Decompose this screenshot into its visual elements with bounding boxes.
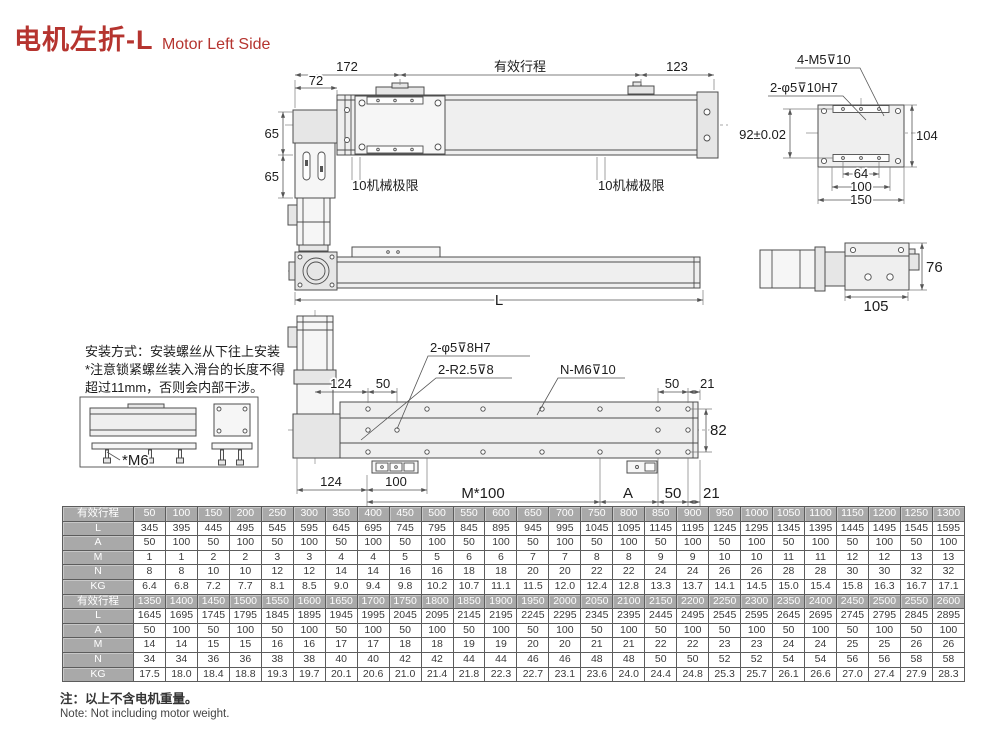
stroke-value-cell: 1800 (421, 594, 453, 609)
sensor (628, 86, 654, 94)
spec-value-cell: 24.0 (613, 667, 645, 682)
spec-value-cell: 19.3 (261, 667, 293, 682)
spec-value-cell: 10 (229, 565, 261, 580)
spec-row: KG6.46.87.27.78.18.59.09.49.810.210.711.… (63, 579, 965, 594)
spec-value-cell: 495 (229, 521, 261, 536)
spec-value-cell: 3 (293, 550, 325, 565)
spec-value-cell: 845 (453, 521, 485, 536)
spec-value-cell: 8 (165, 565, 197, 580)
stroke-value-cell: 2600 (932, 594, 964, 609)
spec-value-cell: 13 (932, 550, 964, 565)
spec-value-cell: 16.7 (900, 579, 932, 594)
stroke-value-cell: 1750 (389, 594, 421, 609)
spec-value-cell: 44 (485, 652, 517, 667)
spec-value-cell: 1095 (613, 521, 645, 536)
spec-value-cell: 6.8 (165, 579, 197, 594)
mount-note-line2: *注意锁紧螺丝装入滑台的长度不得 (85, 362, 285, 377)
spec-value-cell: 4 (357, 550, 389, 565)
spec-value-cell: 23 (709, 638, 741, 653)
spec-row: M1122334455667788991010111112121313 (63, 550, 965, 565)
dim-92: 92±0.02 (739, 127, 786, 142)
spec-value-cell: 995 (549, 521, 581, 536)
spec-value-cell: 54 (773, 652, 805, 667)
spec-value-cell: 2 (197, 550, 229, 565)
spec-value-cell: 38 (261, 652, 293, 667)
spec-value-cell: 14 (134, 638, 166, 653)
stroke-value-cell: 1900 (485, 594, 517, 609)
spec-value-cell: 100 (932, 623, 964, 638)
spec-value-cell: 12 (293, 565, 325, 580)
spec-table: 有效行程501001502002503003504004505005506006… (62, 506, 965, 682)
spec-table-container: 有效行程501001502002503003504004505005506006… (62, 506, 965, 682)
spec-value-cell: 9.8 (389, 579, 421, 594)
label-mech-limit-right: 10机械极限 (598, 178, 664, 193)
spec-value-cell: 38 (293, 652, 325, 667)
spec-value-cell: 100 (229, 623, 261, 638)
spec-value-cell: 100 (485, 623, 517, 638)
spec-value-cell: 1 (134, 550, 166, 565)
spec-value-cell: 34 (165, 652, 197, 667)
spec-value-cell: 1145 (645, 521, 677, 536)
spec-value-cell: 23.6 (581, 667, 613, 682)
spec-value-cell: 100 (165, 623, 197, 638)
row-label: A (63, 536, 134, 551)
spec-value-cell: 100 (868, 536, 900, 551)
spec-value-cell: 18.4 (197, 667, 229, 682)
ann-2-phi5-8h7: 2-φ5⊽8H7 (430, 340, 491, 355)
spec-value-cell: 56 (868, 652, 900, 667)
spec-value-cell: 1445 (836, 521, 868, 536)
spec-value-cell: 15.8 (836, 579, 868, 594)
spec-row: A501005010050100501005010050100501005010… (63, 623, 965, 638)
spec-value-cell: 9.4 (357, 579, 389, 594)
spec-value-cell: 50 (900, 536, 932, 551)
mount-screws-right (219, 450, 244, 465)
spec-value-cell: 12 (836, 550, 868, 565)
spec-value-cell: 19 (453, 638, 485, 653)
dim-m100: M*100 (461, 485, 504, 502)
spec-value-cell: 19 (485, 638, 517, 653)
spec-value-cell: 50 (197, 623, 229, 638)
spec-value-cell: 2295 (549, 609, 581, 624)
spec-value-cell: 8.1 (261, 579, 293, 594)
spec-value-cell: 100 (165, 536, 197, 551)
spec-value-cell: 100 (741, 536, 773, 551)
stroke-value-cell: 2100 (613, 594, 645, 609)
spec-value-cell: 46 (549, 652, 581, 667)
spec-value-cell: 395 (165, 521, 197, 536)
spec-value-cell: 2645 (773, 609, 805, 624)
spec-value-cell: 11 (805, 550, 837, 565)
spec-value-cell: 895 (485, 521, 517, 536)
spec-value-cell: 15.4 (805, 579, 837, 594)
spec-value-cell: 24.4 (645, 667, 677, 682)
spec-value-cell: 2545 (709, 609, 741, 624)
spec-value-cell: 27.4 (868, 667, 900, 682)
spec-value-cell: 5 (421, 550, 453, 565)
spec-value-cell: 52 (709, 652, 741, 667)
dim-104: 104 (916, 128, 938, 143)
spec-value-cell: 8 (134, 565, 166, 580)
spec-value-cell: 20 (517, 565, 549, 580)
dim-50-top-right: 50 (665, 376, 679, 391)
spec-value-cell: 2345 (581, 609, 613, 624)
spec-row: KG17.518.018.418.819.319.720.120.621.021… (63, 667, 965, 682)
stroke-value-cell: 700 (549, 507, 581, 522)
spec-value-cell: 46 (517, 652, 549, 667)
spec-value-cell: 34 (134, 652, 166, 667)
spec-value-cell: 11.5 (517, 579, 549, 594)
spec-value-cell: 10 (741, 550, 773, 565)
spec-value-cell: 2245 (517, 609, 549, 624)
spec-value-cell: 545 (261, 521, 293, 536)
dim-21-bottom: 21 (703, 485, 720, 502)
motor-end (760, 250, 815, 288)
spec-value-cell: 1345 (773, 521, 805, 536)
spec-value-cell: 50 (581, 623, 613, 638)
spec-value-cell: 1995 (357, 609, 389, 624)
dim-123: 123 (666, 59, 688, 74)
motor-top-block (297, 316, 333, 370)
spec-value-cell: 10.7 (453, 579, 485, 594)
spec-value-cell: 25.7 (741, 667, 773, 682)
stroke-value-cell: 1450 (197, 594, 229, 609)
spec-value-cell: 25 (836, 638, 868, 653)
spec-value-cell: 15 (229, 638, 261, 653)
spec-value-cell: 2495 (677, 609, 709, 624)
spec-value-cell: 100 (868, 623, 900, 638)
spec-value-cell: 1645 (134, 609, 166, 624)
spec-row: A501005010050100501005010050100501005010… (63, 536, 965, 551)
spec-value-cell: 25.3 (709, 667, 741, 682)
spec-value-cell: 23.1 (549, 667, 581, 682)
spec-value-cell: 945 (517, 521, 549, 536)
dim-L: L (495, 292, 503, 309)
spec-value-cell: 58 (932, 652, 964, 667)
spec-value-cell: 21.0 (389, 667, 421, 682)
sensor-end (909, 254, 919, 270)
dim-72: 72 (309, 73, 323, 88)
spec-value-cell: 50 (197, 536, 229, 551)
stroke-value-cell: 300 (293, 507, 325, 522)
carriage-plate (355, 96, 445, 154)
spec-value-cell: 100 (485, 536, 517, 551)
spec-value-cell: 50 (645, 623, 677, 638)
motor-body (295, 143, 335, 198)
stroke-value-cell: 2450 (836, 594, 868, 609)
spec-value-cell: 7.2 (197, 579, 229, 594)
spec-value-cell: 42 (421, 652, 453, 667)
spec-value-cell: 7 (549, 550, 581, 565)
spec-value-cell: 2045 (389, 609, 421, 624)
spec-value-cell: 18 (389, 638, 421, 653)
spec-value-cell: 20 (549, 638, 581, 653)
spec-value-cell: 3 (261, 550, 293, 565)
spec-row: N881010121214141616181820202222242426262… (63, 565, 965, 580)
stroke-value-cell: 950 (709, 507, 741, 522)
spec-value-cell: 28 (805, 565, 837, 580)
stroke-value-cell: 2200 (677, 594, 709, 609)
stroke-value-cell: 350 (325, 507, 357, 522)
stroke-value-cell: 1550 (261, 594, 293, 609)
spec-value-cell: 26 (900, 638, 932, 653)
spec-value-cell: 8.5 (293, 579, 325, 594)
dim-100-bottom: 100 (385, 474, 407, 489)
spec-value-cell: 6.4 (134, 579, 166, 594)
spec-value-cell: 50 (836, 536, 868, 551)
spec-value-cell: 22 (645, 638, 677, 653)
stroke-value-cell: 400 (357, 507, 389, 522)
bottom-view-drawing: 2-φ5⊽8H7 2-R2.5⊽8 N-M6⊽10 124 50 50 21 8… (288, 310, 727, 506)
row-label: N (63, 565, 134, 580)
spec-value-cell: 14.1 (709, 579, 741, 594)
spec-value-cell: 100 (805, 536, 837, 551)
ann-n-m6: N-M6⊽10 (560, 362, 616, 377)
spec-value-cell: 36 (197, 652, 229, 667)
spec-value-cell: 1045 (581, 521, 613, 536)
spec-value-cell: 17.1 (932, 579, 964, 594)
spec-value-cell: 100 (357, 623, 389, 638)
spec-value-cell: 2195 (485, 609, 517, 624)
row-label: M (63, 638, 134, 653)
dim-21-top-right: 21 (700, 376, 714, 391)
dim-124-bottom: 124 (320, 474, 342, 489)
spec-value-cell: 32 (900, 565, 932, 580)
spec-value-cell: 18 (485, 565, 517, 580)
dim-50-top: 50 (376, 376, 390, 391)
stroke-value-cell: 1500 (229, 594, 261, 609)
note-chinese: 注：以上不含电机重量。 (60, 688, 229, 707)
stroke-value-cell: 750 (581, 507, 613, 522)
dim-82: 82 (710, 422, 727, 439)
stroke-value-cell: 1850 (453, 594, 485, 609)
spec-value-cell: 50 (517, 623, 549, 638)
spec-value-cell: 18 (421, 638, 453, 653)
stroke-value-cell: 1300 (932, 507, 964, 522)
spec-value-cell: 24.8 (677, 667, 709, 682)
carriage-side (352, 247, 440, 257)
stroke-value-cell: 200 (229, 507, 261, 522)
spec-value-cell: 595 (293, 521, 325, 536)
spec-value-cell: 10 (709, 550, 741, 565)
motor-bracket (293, 110, 337, 143)
spec-value-cell: 27.9 (900, 667, 932, 682)
spec-value-cell: 5 (389, 550, 421, 565)
spec-value-cell: 30 (868, 565, 900, 580)
spec-value-cell: 2595 (741, 609, 773, 624)
stroke-value-cell: 2050 (581, 594, 613, 609)
ann-2-r2-5: 2-R2.5⊽8 (438, 362, 494, 377)
spec-value-cell: 6 (453, 550, 485, 565)
spec-value-cell: 21 (613, 638, 645, 653)
row-label: KG (63, 667, 134, 682)
spec-value-cell: 14.5 (741, 579, 773, 594)
spec-value-cell: 22 (613, 565, 645, 580)
dim-50-bottom: 50 (665, 485, 682, 502)
stroke-value-cell: 1350 (134, 594, 166, 609)
spec-value-cell: 28.3 (932, 667, 964, 682)
spec-value-cell: 44 (453, 652, 485, 667)
mount-note-line3: 超过11mm，否则会内部干涉。 (85, 380, 263, 395)
end-view-drawing: 76 105 (760, 243, 943, 315)
spec-value-cell: 12.0 (549, 579, 581, 594)
spec-value-cell: 9 (677, 550, 709, 565)
spec-value-cell: 25 (868, 638, 900, 653)
stroke-value-cell: 1000 (741, 507, 773, 522)
spec-value-cell: 7.7 (229, 579, 261, 594)
spec-value-cell: 22 (677, 638, 709, 653)
spec-value-cell: 17 (357, 638, 389, 653)
stroke-value-cell: 550 (453, 507, 485, 522)
spec-value-cell: 36 (229, 652, 261, 667)
spec-value-cell: 18.8 (229, 667, 261, 682)
spec-value-cell: 100 (677, 536, 709, 551)
spec-value-cell: 100 (421, 623, 453, 638)
spec-value-cell: 50 (773, 623, 805, 638)
spec-value-cell: 6 (485, 550, 517, 565)
spec-value-cell: 2795 (868, 609, 900, 624)
row-label: 有效行程 (63, 507, 134, 522)
spec-value-cell: 19.7 (293, 667, 325, 682)
spec-value-cell: 28 (773, 565, 805, 580)
spec-value-cell: 1945 (325, 609, 357, 624)
spec-value-cell: 100 (741, 623, 773, 638)
stroke-value-cell: 1600 (293, 594, 325, 609)
spec-value-cell: 21.8 (453, 667, 485, 682)
spec-value-cell: 1545 (900, 521, 932, 536)
top-view-drawing: 172 有效行程 123 72 65 65 10机械极限 10机械极限 (265, 59, 728, 251)
spec-row: L345395445495545595645695745795845895945… (63, 521, 965, 536)
spec-value-cell: 11.1 (485, 579, 517, 594)
dim-150: 150 (850, 192, 872, 207)
row-label: A (63, 623, 134, 638)
stroke-value-cell: 2500 (868, 594, 900, 609)
dim-172: 172 (336, 59, 358, 74)
stroke-value-cell: 900 (677, 507, 709, 522)
spec-value-cell: 48 (581, 652, 613, 667)
spec-value-cell: 50 (389, 536, 421, 551)
spec-value-cell: 24 (645, 565, 677, 580)
motor-shaft-housing (297, 198, 330, 245)
stroke-value-cell: 1050 (773, 507, 805, 522)
spec-value-cell: 2145 (453, 609, 485, 624)
spec-value-cell: 20 (549, 565, 581, 580)
spec-value-cell: 1295 (741, 521, 773, 536)
spec-value-cell: 21 (581, 638, 613, 653)
spec-value-cell: 16 (261, 638, 293, 653)
spec-value-cell: 50 (836, 623, 868, 638)
spec-value-cell: 20.1 (325, 667, 357, 682)
dim-effective-stroke: 有效行程 (494, 59, 546, 74)
stroke-value-cell: 850 (645, 507, 677, 522)
stroke-value-cell: 2550 (900, 594, 932, 609)
dim-76: 76 (926, 259, 943, 276)
row-label: 有效行程 (63, 594, 134, 609)
spec-value-cell: 10 (197, 565, 229, 580)
stroke-value-cell: 2000 (549, 594, 581, 609)
spec-value-cell: 50 (900, 623, 932, 638)
spec-value-cell: 30 (836, 565, 868, 580)
spec-value-cell: 2395 (613, 609, 645, 624)
spec-value-cell: 13.7 (677, 579, 709, 594)
row-label: KG (63, 579, 134, 594)
spec-value-cell: 16 (293, 638, 325, 653)
spec-value-cell: 1395 (805, 521, 837, 536)
dim-65-upper: 65 (265, 126, 279, 141)
spec-value-cell: 1795 (229, 609, 261, 624)
spec-value-cell: 15 (197, 638, 229, 653)
spec-value-cell: 48 (613, 652, 645, 667)
spec-value-cell: 2845 (900, 609, 932, 624)
stroke-value-cell: 250 (261, 507, 293, 522)
spec-value-cell: 50 (773, 536, 805, 551)
spec-value-cell: 17.5 (134, 667, 166, 682)
stroke-value-cell: 2300 (741, 594, 773, 609)
spec-value-cell: 695 (357, 521, 389, 536)
dim-A: A (623, 485, 633, 502)
row-label: L (63, 521, 134, 536)
spec-value-cell: 18 (453, 565, 485, 580)
spec-value-cell: 1595 (932, 521, 964, 536)
spec-value-cell: 100 (677, 623, 709, 638)
spec-value-cell: 21.4 (421, 667, 453, 682)
spec-row: M141415151616171718181919202021212222232… (63, 638, 965, 653)
spec-value-cell: 445 (197, 521, 229, 536)
stroke-value-cell: 1250 (900, 507, 932, 522)
spec-value-cell: 22.3 (485, 667, 517, 682)
spec-value-cell: 9 (645, 550, 677, 565)
spec-value-cell: 24 (677, 565, 709, 580)
spec-value-cell: 50 (581, 536, 613, 551)
spec-value-cell: 23 (741, 638, 773, 653)
spec-value-cell: 12 (261, 565, 293, 580)
spec-value-cell: 50 (453, 623, 485, 638)
spec-value-cell: 50 (325, 623, 357, 638)
label-mech-limit-left: 10机械极限 (352, 178, 418, 193)
spec-value-cell: 8 (581, 550, 613, 565)
spec-value-cell: 2745 (836, 609, 868, 624)
ann-2-phi5-10h7: 2-φ5⊽10H7 (770, 80, 838, 95)
spec-value-cell: 50 (325, 536, 357, 551)
spec-value-cell: 2445 (645, 609, 677, 624)
spec-value-cell: 22.7 (517, 667, 549, 682)
spec-value-cell: 50 (453, 536, 485, 551)
spec-value-cell: 20.6 (357, 667, 389, 682)
spec-value-cell: 1245 (709, 521, 741, 536)
spec-value-cell: 15.0 (773, 579, 805, 594)
spec-value-cell: 12.8 (613, 579, 645, 594)
spec-value-cell: 50 (261, 536, 293, 551)
stroke-value-cell: 2350 (773, 594, 805, 609)
spec-value-cell: 7 (517, 550, 549, 565)
stroke-value-cell: 1100 (805, 507, 837, 522)
end-cap (697, 92, 718, 158)
spec-value-cell: 14 (357, 565, 389, 580)
spec-value-cell: 645 (325, 521, 357, 536)
spec-value-cell: 745 (389, 521, 421, 536)
spec-value-cell: 26 (741, 565, 773, 580)
stroke-value-cell: 2150 (645, 594, 677, 609)
spec-value-cell: 50 (709, 623, 741, 638)
spec-value-cell: 50 (261, 623, 293, 638)
spec-value-cell: 24 (773, 638, 805, 653)
dim-124-top: 124 (330, 376, 352, 391)
spec-value-cell: 2095 (421, 609, 453, 624)
footnotes: 注：以上不含电机重量。 Note: Not including motor we… (60, 688, 229, 720)
stroke-header-row: 有效行程135014001450150015501600165017001750… (63, 594, 965, 609)
spec-value-cell: 26.6 (805, 667, 837, 682)
spec-value-cell: 2895 (932, 609, 964, 624)
